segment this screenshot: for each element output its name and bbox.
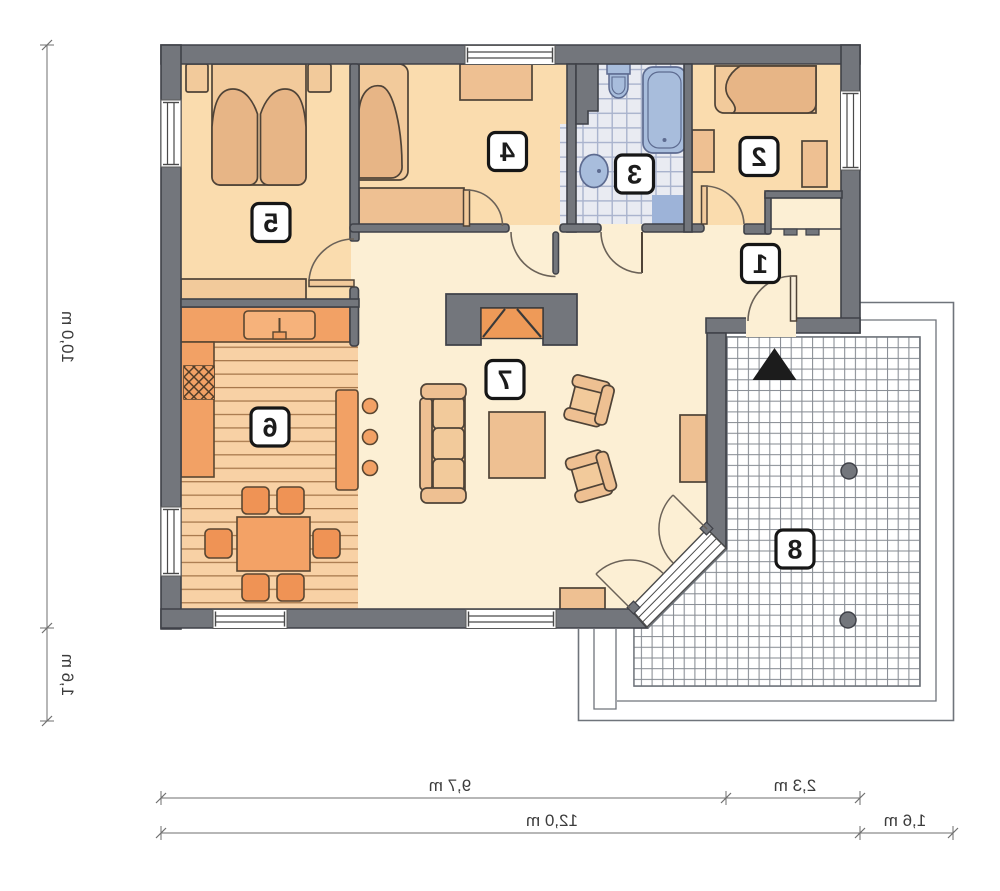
svg-text:12,0 m: 12,0 m xyxy=(526,811,578,830)
svg-text:1: 1 xyxy=(753,249,768,279)
svg-text:4: 4 xyxy=(500,137,515,167)
svg-text:9,7 m: 9,7 m xyxy=(429,776,472,795)
svg-text:5: 5 xyxy=(263,208,278,238)
svg-text:7: 7 xyxy=(497,365,512,395)
svg-text:1,6 m: 1,6 m xyxy=(58,654,77,697)
svg-text:3: 3 xyxy=(627,160,642,190)
svg-text:6: 6 xyxy=(262,413,277,443)
svg-text:2,3 m: 2,3 m xyxy=(774,776,817,795)
svg-text:1,6 m: 1,6 m xyxy=(884,811,927,830)
svg-text:2: 2 xyxy=(751,142,766,172)
svg-text:10,0 m: 10,0 m xyxy=(58,311,77,363)
svg-text:8: 8 xyxy=(787,535,802,565)
